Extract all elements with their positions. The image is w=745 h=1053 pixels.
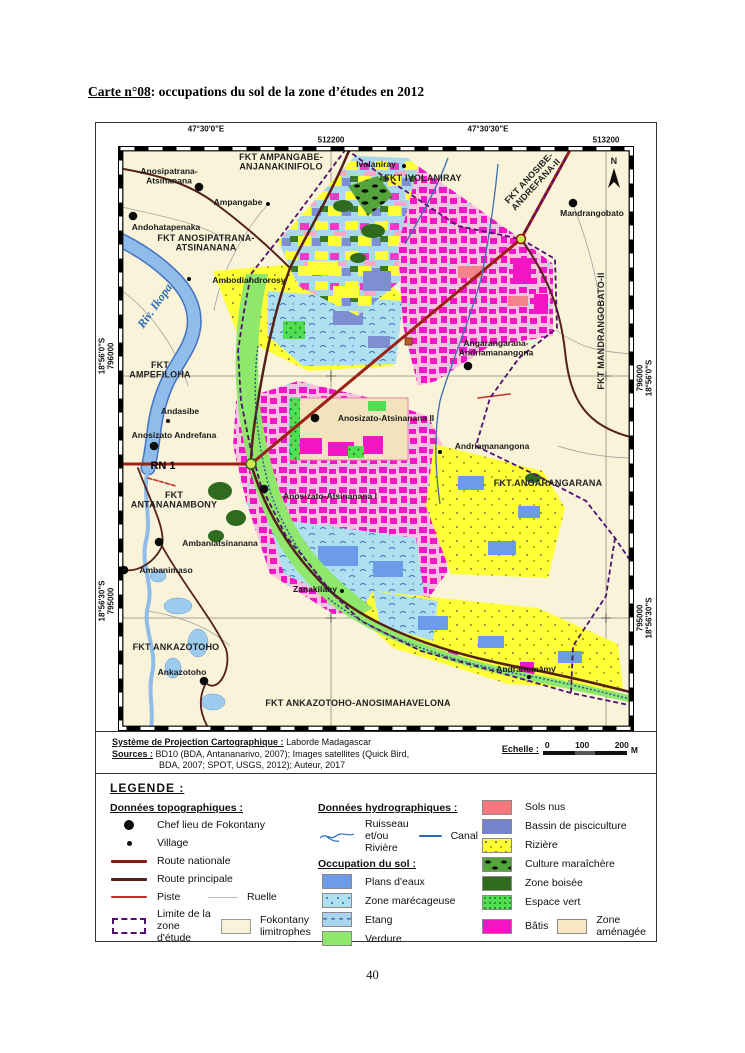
chef-lieu-point [311,414,320,423]
map-label: FKT MANDRANGOBATO-II [596,272,606,389]
coord-northing-north-right: 796000 [636,365,645,392]
culture-maraichere-swatch [482,857,512,872]
chef-lieu-point [150,442,159,451]
coord-northing-south-left: 795000 [107,588,116,615]
map-label: RN 1 [150,460,175,472]
batis-swatch [482,919,512,934]
scale-unit: M [631,745,638,755]
map-label: Andohatapenaka [132,222,201,232]
map-label: Anosipatrana-Atsinanana [140,166,197,186]
map-label: FKT AMPANGABE-ANJANAKINIFOLO [239,152,323,172]
chef-lieu-point [569,199,578,208]
legend-item-village: Village [110,836,315,850]
map-label: Andriamanangona [455,441,530,451]
map-canvas: Anosipatrana-AtsinananaFKT AMPANGABE-ANJ… [118,146,634,731]
legend-item-route-principale: Route principale [110,872,315,886]
legend-item-limite-fokontany: Limite de la zone d'étude Fokontany limi… [110,908,315,944]
coord-lat-north-right: 18°56'0"S [645,360,654,396]
legend-item-piste-ruelle: Piste Ruelle [110,890,315,904]
coord-northing-south-right: 795000 [636,605,645,632]
legend-landuse-title: Occupation du sol : [318,858,478,870]
chef-lieu-point [195,183,204,192]
map-label: FKT ANGARANGARANA [494,478,603,488]
sources-value-1: BD10 (BDA, Antananarivo, 2007); Images s… [156,749,410,759]
scale-ticks: 0 100 200 [545,740,629,750]
legend-item-culture: Culture maraîchère [478,857,650,872]
legend-item-route-nationale: Route nationale [110,854,315,868]
map-label: Ambaniatsinanana [182,538,258,548]
route-nationale-line-icon [111,860,147,863]
map-label: Ampangabe [214,197,263,207]
legend-item-plans-deaux: Plans d'eaux [318,874,478,889]
map-label: FKT IVOLANIRAY [384,173,461,183]
verdure-swatch [322,931,352,946]
espace-vert-swatch [482,895,512,910]
fokontany-limitrophes-swatch [221,919,251,934]
sources-line-2: BDA, 2007; SPOT, USGS, 2012); Auteur, 20… [159,760,345,770]
map-title-text: : occupations du sol de la zone d’études… [151,84,424,99]
projection-label: Système de Projection Cartographique : [112,737,284,747]
village-dot-icon [127,841,132,846]
map-label: Anosizato-Atsinanana I [283,491,377,501]
legend-item-espace-vert: Espace vert [478,895,650,910]
legend-item-verdure: Verdure [318,931,478,946]
legend: LEGENDE : Données topographiques : Chef … [96,773,656,940]
legend-item-boisee: Zone boisée [478,876,650,891]
route-principale-line-icon [111,878,147,881]
map-label: N [611,156,618,166]
map-label: Angarangarana-Andriamanangona [459,338,534,358]
scale-tick-200: 200 [615,740,629,750]
scale-tick-100: 100 [575,740,589,750]
village-point [166,419,170,423]
chef-lieu-point [155,538,164,547]
sources-value-2: BDA, 2007; SPOT, USGS, 2012); Auteur, 20… [159,760,345,770]
coord-lat-south-left: 18°56'30"S [98,581,107,622]
coord-lat-south-right: 18°56'30"S [645,598,654,639]
document-page: { "page": { "title_prefix": "Carte n°08"… [0,0,745,1053]
map-label: Andasibe [161,406,200,416]
legend-item-etang: Etang [318,912,478,927]
zone-marecageuse-swatch [322,893,352,908]
legend-item-sols-nus: Sols nus [478,800,650,815]
projection-line: Système de Projection Cartographique : L… [112,737,371,747]
piste-line-icon [111,896,147,898]
map-label: Anosizato Andrefana [132,430,217,440]
map-label: Mandrangobato [560,208,624,218]
map-label: Andranomamy [496,664,556,674]
coord-easting-west: 512200 [318,136,345,145]
legend-topo-title: Données topographiques : [110,802,315,814]
chef-lieu-point [464,362,473,371]
sols-nus-swatch [482,800,512,815]
legend-item-riziere: Rizière [478,838,650,853]
legend-item-bassin: Bassin de pisciculture [478,819,650,834]
village-point [340,589,344,593]
legend-item-batis-amenagee: Bâtis Zone aménagée [478,914,650,938]
plans-deaux-swatch [322,874,352,889]
coord-lat-north-left: 18°56'0"S [98,338,107,374]
limite-zone-swatch [112,918,146,934]
map-label: Ambanimaso [139,565,192,575]
page-number: 40 [0,968,745,983]
map-label: Ivolaniray [356,159,396,169]
canal-line-icon [419,835,442,837]
coord-longitude-west: 47°30'0"E [188,125,224,134]
map-frame: 47°30'0"E 47°30'30"E 512200 513200 18°56… [95,122,657,942]
zone-amenagee-swatch [557,919,587,934]
etang-swatch [322,912,352,927]
legend-landuse-column: Sols nus Bassin de pisciculture Rizière … [478,796,650,942]
legend-item-chef-lieu: Chef lieu de Fokontany [110,818,315,832]
bassin-pisciculture-swatch [482,819,512,834]
chef-lieu-point [260,485,269,494]
chef-lieu-dot-icon [124,820,134,830]
ruelle-line-icon [208,897,238,898]
legend-item-marecageuse: Zone marécageuse [318,893,478,908]
village-point [438,450,442,454]
village-point [527,675,531,679]
village-point [266,202,270,206]
map-label: Zanakilahy [293,584,337,594]
legend-topographic-column: Données topographiques : Chef lieu de Fo… [110,800,315,948]
map-label: FKT ANKAZOTOHO [133,642,220,652]
legend-hydro-title: Données hydrographiques : [318,802,478,814]
map-footer: Système de Projection Cartographique : L… [96,731,656,774]
scale-label: Echelle : [502,744,539,754]
map-title-number: Carte n°08 [88,84,151,99]
chef-lieu-point [129,212,138,221]
coord-longitude-east: 47°30'30"E [468,125,509,134]
sources-line: Sources : BD10 (BDA, Antananarivo, 2007)… [112,749,409,759]
coord-northing-north-left: 796000 [107,343,116,370]
projection-value: Laborde Madagascar [286,737,371,747]
chef-lieu-point [200,677,209,686]
sources-label: Sources : [112,749,153,759]
village-point [402,164,406,168]
village-point [187,277,191,281]
coord-easting-east: 513200 [593,136,620,145]
legend-title: LEGENDE : [110,781,184,795]
scale-bar-graphic [543,751,627,755]
map-label: Ambodiandrorosy [212,275,285,285]
zone-boisee-swatch [482,876,512,891]
map-title: Carte n°08: occupations du sol de la zon… [88,84,424,100]
riziere-swatch [482,838,512,853]
legend-item-ruisseau-canal: Ruisseau et/ou Rivière Canal [318,818,478,854]
scale-tick-0: 0 [545,740,550,750]
map-label: Anosizato-Atsinanana II [338,413,434,423]
scale-bar-body: 0 100 200 [543,740,627,755]
scale-bar: Echelle : 0 100 200 M [502,740,638,755]
legend-hydro-column: Données hydrographiques : Ruisseau et/ou… [318,800,478,950]
map-label: Ankazotoho [158,667,207,677]
stream-icon [319,828,355,844]
map-label: FKT ANKAZOTOHO-ANOSIMAHAVELONA [265,698,451,708]
